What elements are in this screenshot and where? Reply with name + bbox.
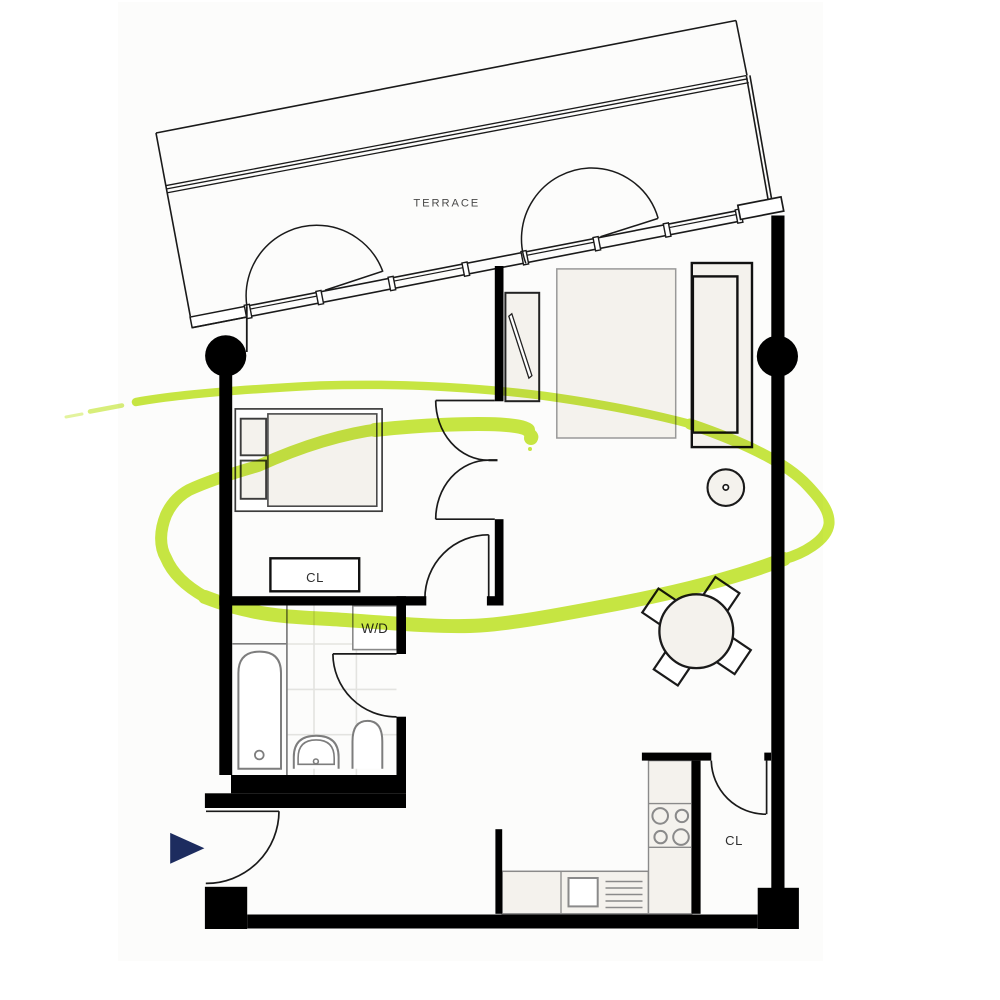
svg-text:TERRACE: TERRACE <box>413 198 480 210</box>
svg-text:CL: CL <box>725 833 743 848</box>
svg-text:CL: CL <box>306 570 324 585</box>
